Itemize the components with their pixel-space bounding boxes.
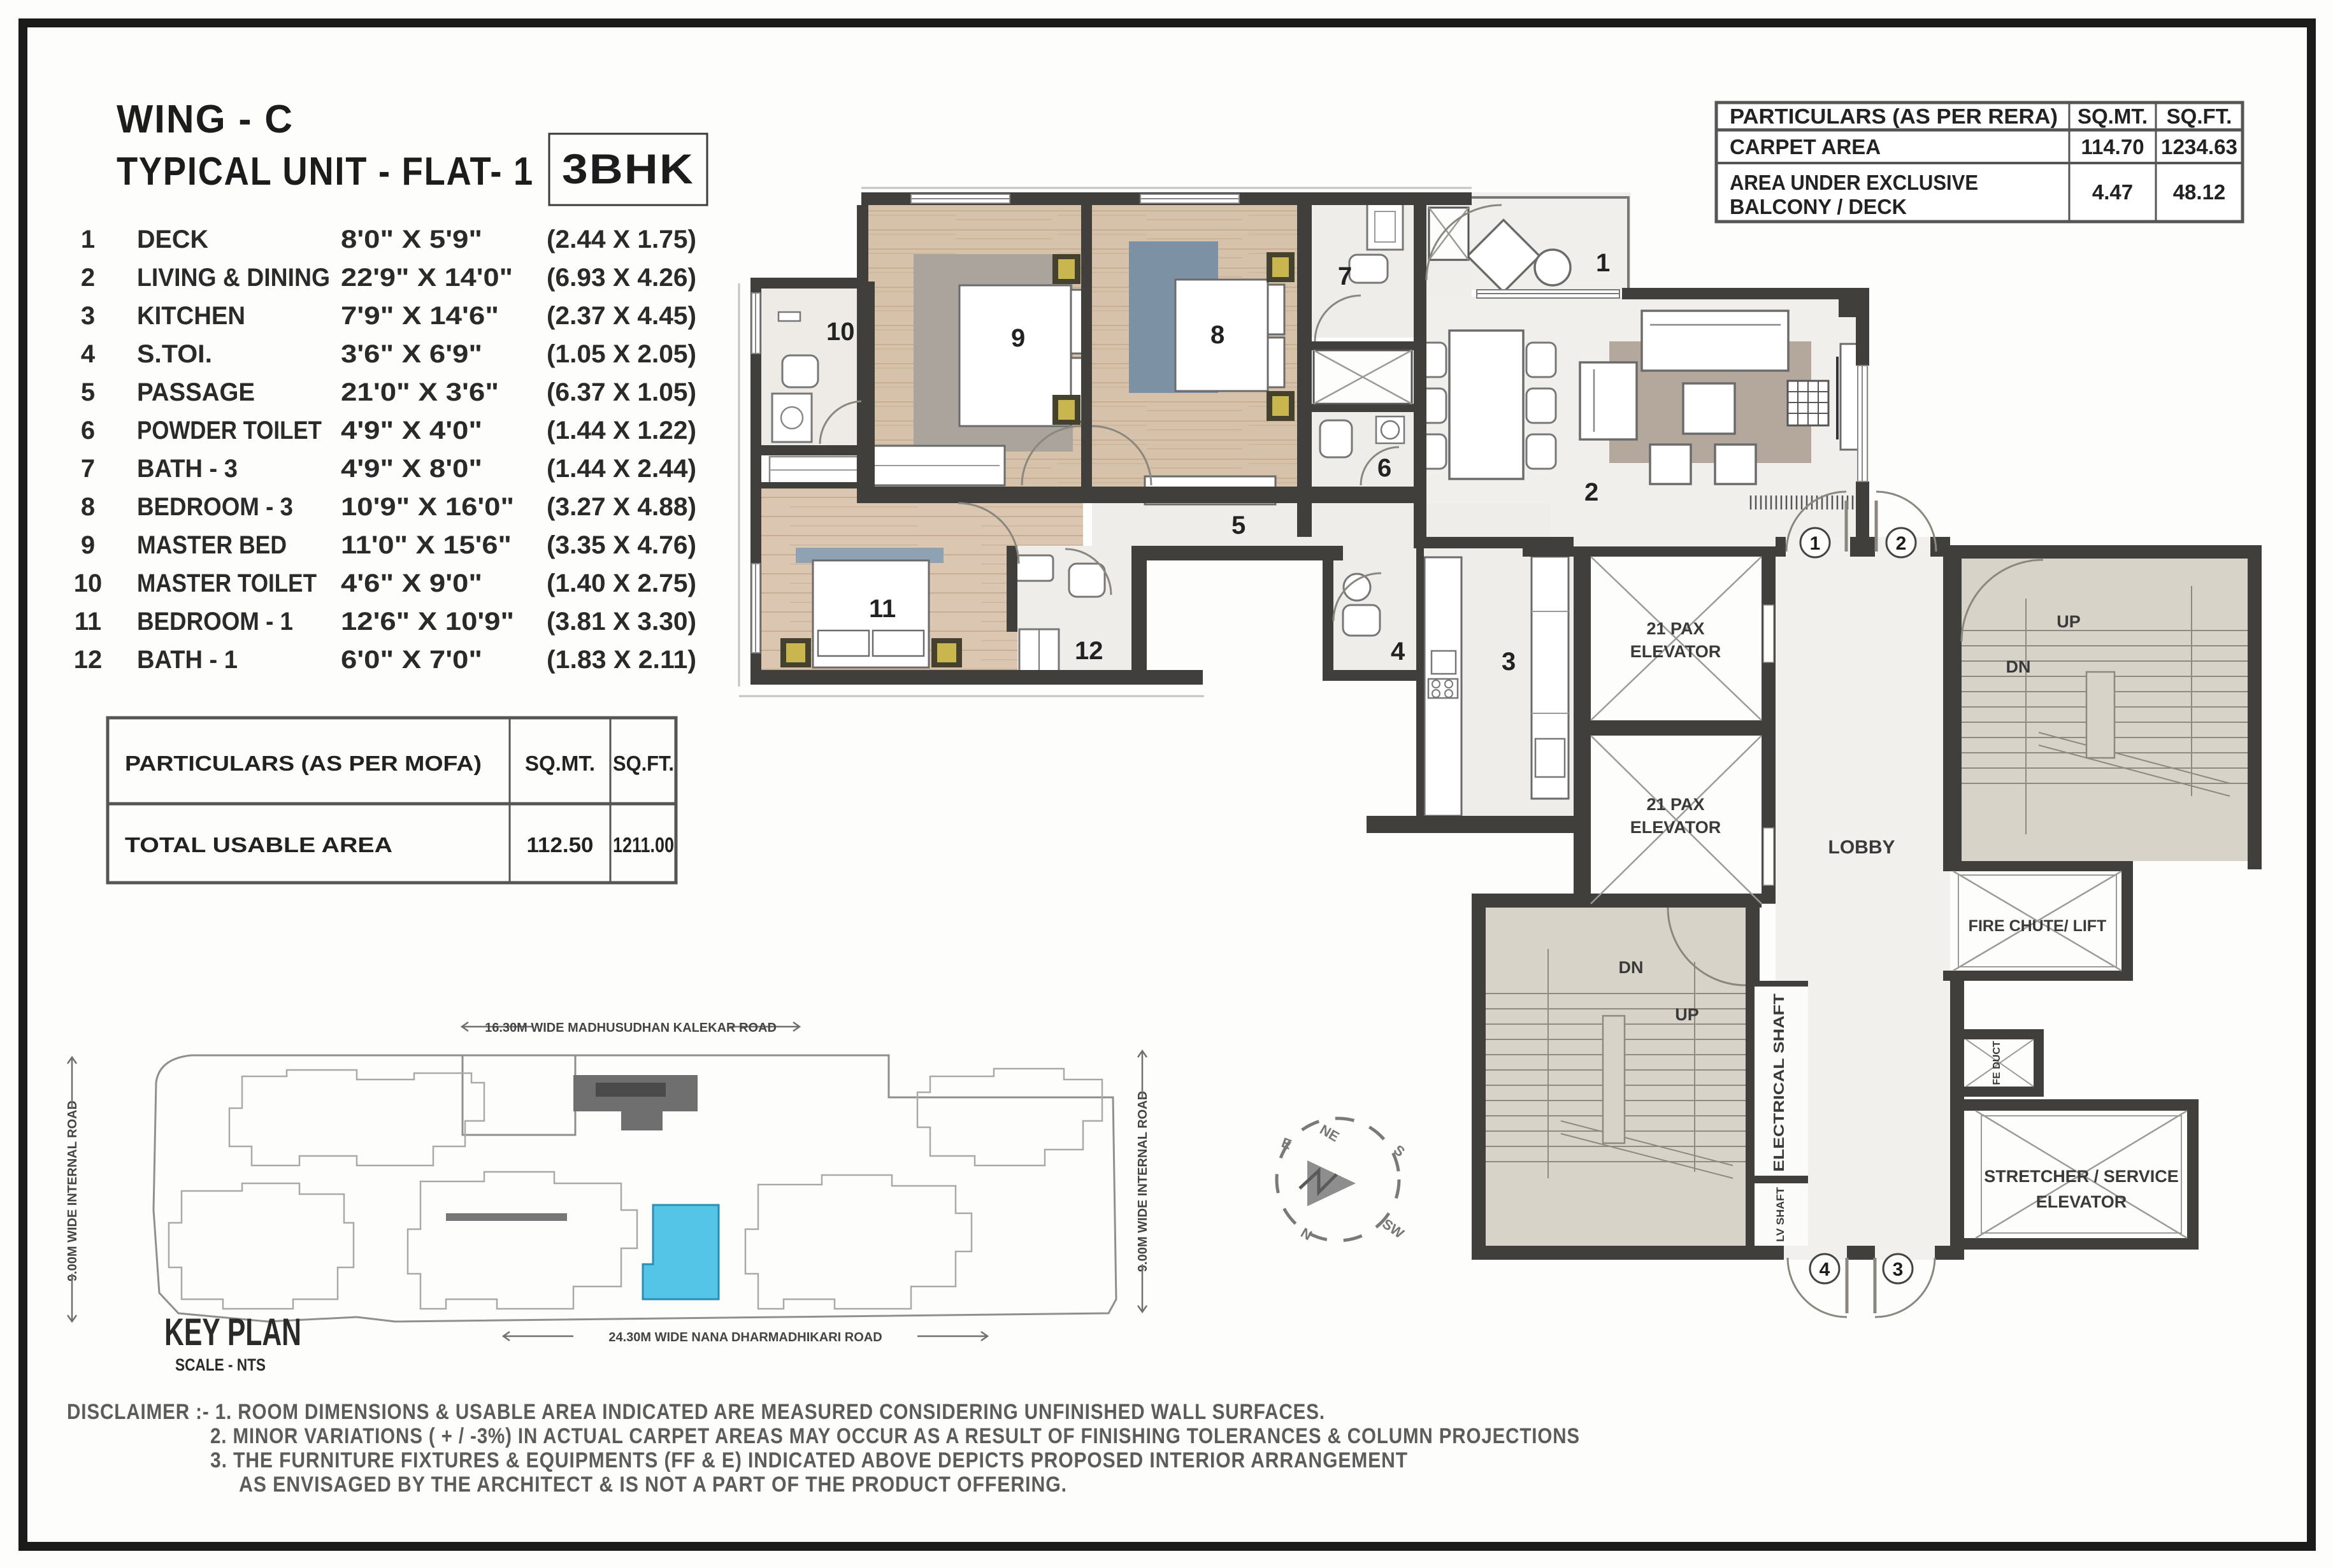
svg-text:AREA UNDER EXCLUSIVE: AREA UNDER EXCLUSIVE: [1730, 171, 1978, 194]
svg-text:21 PAX: 21 PAX: [1646, 795, 1704, 814]
svg-text:AS ENVISAGED BY THE ARCHITECT: AS ENVISAGED BY THE ARCHITECT & IS NOT A…: [239, 1472, 1067, 1497]
svg-text:PARTICULARS (AS PER MOFA): PARTICULARS (AS PER MOFA): [125, 752, 482, 775]
svg-text:3'6" X 6'9": 3'6" X 6'9": [341, 340, 482, 368]
svg-text:21 PAX: 21 PAX: [1646, 619, 1704, 638]
svg-text:SQ.FT.: SQ.FT.: [613, 752, 674, 775]
svg-text:(2.37 X 4.45): (2.37 X 4.45): [547, 302, 696, 330]
svg-text:2: 2: [1584, 478, 1598, 506]
svg-text:12: 12: [74, 646, 103, 674]
svg-text:24.30M WIDE NANA DHARMADHIKARI: 24.30M WIDE NANA DHARMADHIKARI ROAD: [608, 1330, 882, 1344]
svg-text:8'0" X 5'9": 8'0" X 5'9": [341, 225, 482, 253]
svg-text:1: 1: [1810, 533, 1821, 554]
svg-text:16.30M WIDE MADHUSUDHAN KALEKA: 16.30M WIDE MADHUSUDHAN KALEKAR ROAD: [485, 1021, 777, 1035]
svg-text:(3.35 X 4.76): (3.35 X 4.76): [547, 531, 696, 559]
svg-text:PASSAGE: PASSAGE: [137, 378, 255, 406]
svg-text:S.TOI.: S.TOI.: [137, 340, 212, 368]
svg-text:ELEVATOR: ELEVATOR: [1630, 818, 1721, 837]
svg-text:4'6" X 9'0": 4'6" X 9'0": [341, 569, 482, 597]
svg-text:3: 3: [1502, 648, 1516, 676]
svg-text:(1.44 X 2.44): (1.44 X 2.44): [547, 455, 696, 483]
svg-text:2. MINOR VARIATIONS ( + / -3%): 2. MINOR VARIATIONS ( + / -3%) IN ACTUAL…: [210, 1424, 1580, 1448]
svg-text:CARPET AREA: CARPET AREA: [1730, 135, 1881, 159]
svg-text:SCALE - NTS: SCALE - NTS: [175, 1355, 266, 1374]
svg-text:2: 2: [1896, 533, 1907, 554]
svg-text:22'9" X 14'0": 22'9" X 14'0": [341, 264, 513, 292]
svg-text:LOBBY: LOBBY: [1828, 837, 1895, 858]
svg-text:3BHK: 3BHK: [562, 145, 694, 192]
svg-text:3. THE FURNITURE FIXTURES & EQ: 3. THE FURNITURE FIXTURES & EQUIPMENTS (…: [210, 1448, 1408, 1472]
svg-text:10: 10: [74, 569, 103, 597]
svg-text:4.47: 4.47: [2092, 180, 2133, 204]
svg-text:POWDER TOILET: POWDER TOILET: [137, 417, 322, 445]
svg-text:5: 5: [81, 378, 95, 406]
svg-text:(1.83 X 2.11): (1.83 X 2.11): [547, 646, 696, 674]
svg-text:7'9" X 14'6": 7'9" X 14'6": [341, 302, 499, 330]
svg-text:1: 1: [81, 225, 95, 253]
svg-text:MASTER TOILET: MASTER TOILET: [137, 569, 317, 597]
svg-text:(1.44 X 1.22): (1.44 X 1.22): [547, 417, 696, 445]
svg-text:(2.44 X 1.75): (2.44 X 1.75): [547, 225, 696, 253]
svg-text:DISCLAIMER :- 1. ROOM DIMENSIO: DISCLAIMER :- 1. ROOM DIMENSIONS & USABL…: [67, 1400, 1325, 1424]
svg-text:BEDROOM - 1: BEDROOM - 1: [137, 608, 293, 636]
svg-text:LV SHAFT: LV SHAFT: [1774, 1187, 1786, 1242]
svg-text:12'6" X 10'9": 12'6" X 10'9": [341, 608, 514, 636]
svg-text:2: 2: [81, 264, 95, 292]
svg-text:4'9" X 8'0": 4'9" X 8'0": [341, 455, 482, 483]
svg-text:MASTER BED: MASTER BED: [137, 531, 287, 559]
svg-text:4: 4: [1820, 1259, 1830, 1280]
svg-text:21'0" X 3'6": 21'0" X 3'6": [341, 378, 499, 406]
svg-text:11: 11: [869, 595, 896, 623]
svg-text:10: 10: [826, 318, 855, 346]
svg-text:DN: DN: [1619, 958, 1644, 977]
svg-text:6'0" X 7'0": 6'0" X 7'0": [341, 646, 482, 674]
svg-text:7: 7: [81, 455, 95, 483]
svg-text:FIRE CHUTE/ LIFT: FIRE CHUTE/ LIFT: [1969, 917, 2107, 935]
svg-text:BALCONY / DECK: BALCONY / DECK: [1730, 195, 1907, 218]
svg-text:ELEVATOR: ELEVATOR: [2036, 1192, 2127, 1211]
svg-text:9: 9: [1011, 324, 1025, 352]
svg-text:WING - C: WING - C: [117, 97, 294, 141]
svg-text:112.50: 112.50: [527, 833, 594, 857]
svg-text:ELECTRICAL SHAFT: ELECTRICAL SHAFT: [1770, 994, 1787, 1172]
svg-text:6: 6: [81, 417, 95, 445]
svg-text:KEY PLAN: KEY PLAN: [164, 1311, 301, 1353]
svg-text:SQ.FT.: SQ.FT.: [2167, 104, 2232, 128]
svg-text:(3.27 X 4.88): (3.27 X 4.88): [547, 493, 696, 521]
svg-text:TOTAL USABLE AREA: TOTAL USABLE AREA: [125, 833, 392, 857]
svg-text:PARTICULARS (AS PER RERA): PARTICULARS (AS PER RERA): [1730, 104, 2058, 128]
svg-text:8: 8: [1210, 321, 1224, 349]
svg-text:11: 11: [75, 608, 101, 636]
svg-text:(3.81 X 3.30): (3.81 X 3.30): [547, 608, 696, 636]
svg-text:BATH - 3: BATH - 3: [137, 455, 238, 483]
svg-text:12: 12: [1075, 637, 1103, 665]
svg-text:5: 5: [1231, 511, 1245, 539]
svg-text:4'9" X 4'0": 4'9" X 4'0": [341, 417, 482, 445]
svg-text:114.70: 114.70: [2081, 135, 2144, 159]
svg-text:UP: UP: [2057, 612, 2081, 631]
svg-text:4: 4: [81, 340, 96, 368]
svg-text:3: 3: [81, 302, 95, 330]
svg-text:STRETCHER / SERVICE: STRETCHER / SERVICE: [1984, 1167, 2179, 1186]
svg-text:8: 8: [81, 493, 95, 521]
svg-text:FE DUCT: FE DUCT: [1992, 1041, 2002, 1085]
svg-text:11'0" X 15'6": 11'0" X 15'6": [341, 531, 512, 559]
svg-text:BEDROOM - 3: BEDROOM - 3: [137, 493, 293, 521]
svg-text:ELEVATOR: ELEVATOR: [1630, 642, 1721, 661]
svg-text:SQ.MT.: SQ.MT.: [525, 752, 595, 775]
svg-text:UP: UP: [1675, 1005, 1699, 1024]
svg-text:9: 9: [81, 531, 95, 559]
svg-text:1: 1: [1596, 249, 1610, 277]
svg-text:9.00M WIDE INTERNAL ROAD: 9.00M WIDE INTERNAL ROAD: [66, 1101, 80, 1281]
svg-text:(6.93 X 4.26): (6.93 X 4.26): [547, 264, 696, 292]
svg-text:SQ.MT.: SQ.MT.: [2078, 104, 2148, 128]
svg-text:(1.40 X 2.75): (1.40 X 2.75): [547, 569, 696, 597]
svg-text:BATH - 1: BATH - 1: [137, 646, 238, 674]
svg-text:1211.00: 1211.00: [613, 833, 674, 857]
svg-text:10'9" X 16'0": 10'9" X 16'0": [341, 493, 514, 521]
svg-text:KITCHEN: KITCHEN: [137, 302, 245, 330]
svg-text:3: 3: [1893, 1259, 1904, 1280]
svg-text:6: 6: [1377, 454, 1391, 482]
svg-text:9.00M WIDE INTERNAL ROAD: 9.00M WIDE INTERNAL ROAD: [1136, 1091, 1150, 1272]
svg-text:48.12: 48.12: [2173, 180, 2226, 204]
svg-text:DN: DN: [2006, 657, 2031, 676]
svg-text:4: 4: [1391, 638, 1405, 666]
svg-text:LIVING & DINING: LIVING & DINING: [137, 264, 330, 292]
svg-text:(6.37 X 1.05): (6.37 X 1.05): [547, 378, 696, 406]
svg-text:1234.63: 1234.63: [2161, 135, 2237, 159]
svg-text:7: 7: [1338, 262, 1352, 290]
svg-text:TYPICAL UNIT - FLAT- 1: TYPICAL UNIT - FLAT- 1: [117, 150, 534, 194]
svg-text:DECK: DECK: [137, 225, 208, 253]
svg-text:(1.05 X 2.05): (1.05 X 2.05): [547, 340, 696, 368]
